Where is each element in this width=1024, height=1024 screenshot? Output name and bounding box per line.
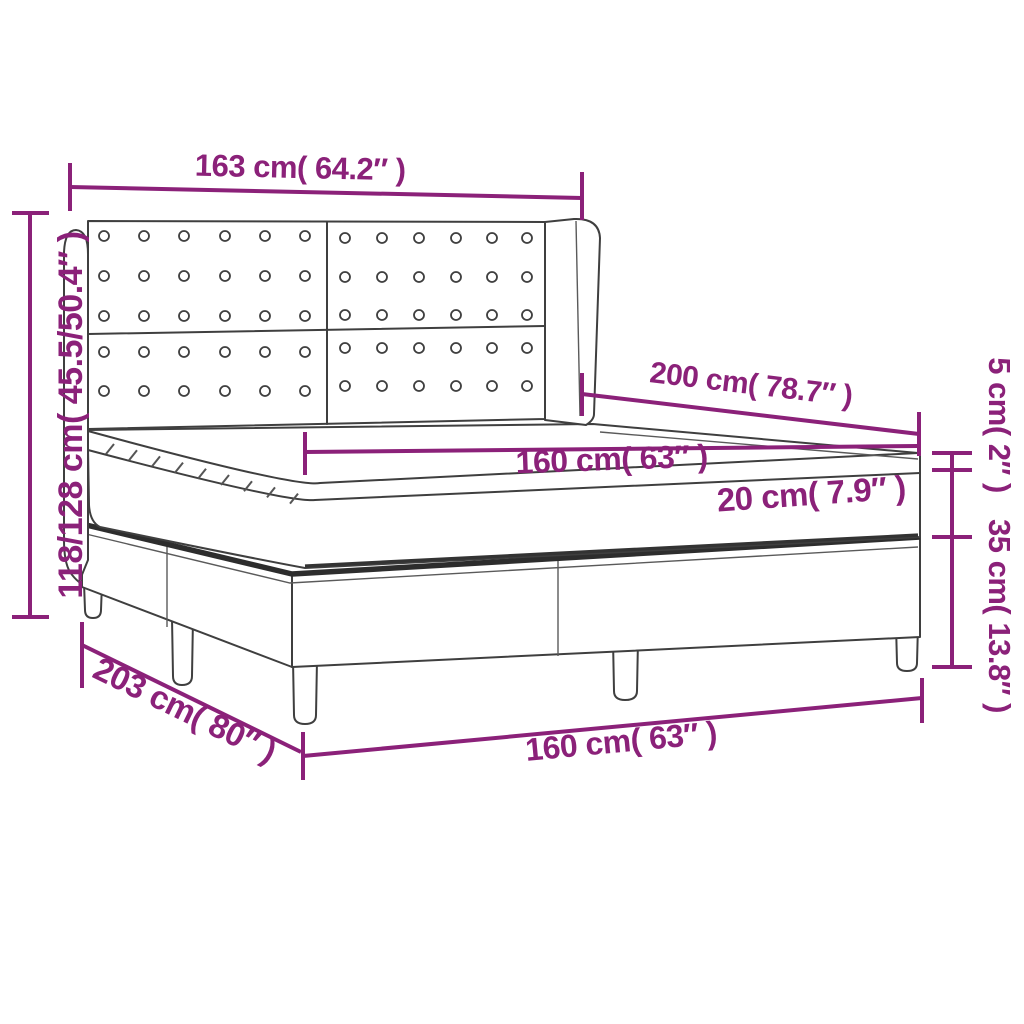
tuft-button xyxy=(260,386,270,396)
tuft-button xyxy=(179,271,189,281)
tuft-button xyxy=(340,310,350,320)
tuft-button xyxy=(99,311,109,321)
tuft-button xyxy=(414,233,424,243)
dim-overall-height: 118/128 cm( 45.5/50.4″ ) xyxy=(12,213,90,617)
tuft-button xyxy=(522,272,532,282)
bed-dimension-diagram: 163 cm( 64.2″ ) 118/128 cm( 45.5/50.4″ )… xyxy=(0,0,1024,1024)
tuft-button xyxy=(522,343,532,353)
tuft-button xyxy=(300,347,310,357)
tuft-button xyxy=(220,386,230,396)
tuft-button xyxy=(522,233,532,243)
dim-height-stack: 5 cm( 2″ ) 35 cm( 13.8″ ) xyxy=(932,357,1017,713)
tuft-button xyxy=(414,381,424,391)
tuft-button xyxy=(377,272,387,282)
tuft-button xyxy=(377,381,387,391)
tuft-button xyxy=(139,311,149,321)
tuft-button xyxy=(451,272,461,282)
tuft-button xyxy=(487,310,497,320)
tuft-button xyxy=(451,233,461,243)
diagram-canvas: 163 cm( 64.2″ ) 118/128 cm( 45.5/50.4″ )… xyxy=(0,0,1024,1024)
tuft-button xyxy=(99,347,109,357)
dim-mattress-width-label: 160 cm( 63″ ) xyxy=(515,438,708,481)
tuft-button xyxy=(139,386,149,396)
tuft-button xyxy=(414,272,424,282)
tuft-button xyxy=(260,231,270,241)
tuft-button xyxy=(487,233,497,243)
tuft-button xyxy=(300,271,310,281)
tuft-button xyxy=(377,233,387,243)
tuft-button xyxy=(99,231,109,241)
tuft-button xyxy=(300,386,310,396)
tuft-button xyxy=(522,310,532,320)
tuft-button xyxy=(377,310,387,320)
tuft-button xyxy=(139,347,149,357)
dim-headboard-width-label: 163 cm( 64.2″ ) xyxy=(195,148,406,188)
tuft-button xyxy=(451,343,461,353)
tuft-button xyxy=(139,271,149,281)
tuft-button xyxy=(260,347,270,357)
tuft-button xyxy=(300,311,310,321)
tuft-button xyxy=(487,381,497,391)
tuft-button xyxy=(260,311,270,321)
bed-leg xyxy=(293,660,317,724)
tuft-button xyxy=(99,386,109,396)
dim-base-width: 160 cm( 63″ ) xyxy=(303,678,922,780)
tuft-button xyxy=(451,381,461,391)
tuft-button xyxy=(139,231,149,241)
dim-pillow-top-height-label: 5 cm( 2″ ) xyxy=(982,357,1017,493)
dim-base-height-label: 35 cm( 13.8″ ) xyxy=(982,519,1017,713)
tuft-button xyxy=(414,310,424,320)
tuft-button xyxy=(414,343,424,353)
tuft-button xyxy=(99,271,109,281)
tuft-button xyxy=(451,310,461,320)
tuft-button xyxy=(179,386,189,396)
tuft-button xyxy=(179,347,189,357)
dim-overall-height-label: 118/128 cm( 45.5/50.4″ ) xyxy=(52,231,90,598)
tuft-button xyxy=(179,311,189,321)
tuft-button xyxy=(220,231,230,241)
tuft-button xyxy=(220,271,230,281)
tuft-button xyxy=(377,343,387,353)
tuft-button xyxy=(260,271,270,281)
tuft-button xyxy=(487,272,497,282)
tuft-button xyxy=(487,343,497,353)
tuft-button xyxy=(522,381,532,391)
dim-base-width-label: 160 cm( 63″ ) xyxy=(524,714,719,768)
tuft-button xyxy=(220,311,230,321)
tuft-button xyxy=(220,347,230,357)
dim-headboard-width: 163 cm( 64.2″ ) xyxy=(70,148,582,220)
headboard-panel xyxy=(88,221,545,429)
tuft-button xyxy=(340,233,350,243)
tuft-button xyxy=(340,381,350,391)
tuft-button xyxy=(340,272,350,282)
tuft-button xyxy=(179,231,189,241)
tuft-button xyxy=(340,343,350,353)
tuft-button xyxy=(300,231,310,241)
